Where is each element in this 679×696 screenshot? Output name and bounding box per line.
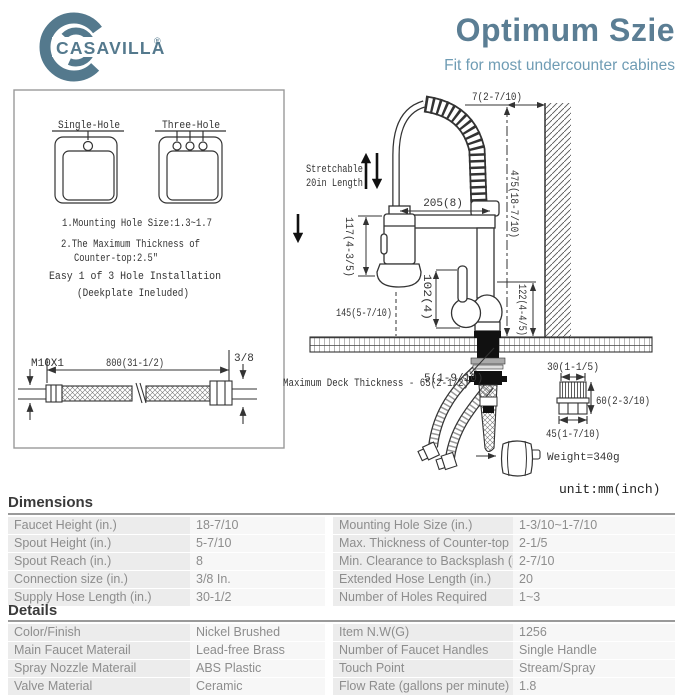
dim-label: Max. Thickness of Counter-top (in.) xyxy=(333,535,513,552)
dim-label: Spout Reach (in.) xyxy=(8,553,190,570)
technical-drawing: Single-Hole Three-Hole 1.Mounting Hole S… xyxy=(0,0,679,498)
hose-weight: Weight=340g xyxy=(476,441,620,476)
detail-label: Valve Material xyxy=(8,678,190,695)
dim-clearance-label: 145(5-7/10) xyxy=(336,308,392,320)
hose-thread-right-label: 3/8 xyxy=(234,353,254,365)
dim-handle-label: 102(4) xyxy=(420,274,432,320)
note-max-thickness-2: Counter-top:2.5" xyxy=(74,253,158,265)
table-row: Spray Nozzle Materail ABS Plastic Touch … xyxy=(8,660,675,677)
dim-spout-reach-label: 205(8) xyxy=(423,198,463,210)
aerator-top-dim-label: 30(1-1/5) xyxy=(547,362,599,374)
dim-label: Connection size (in.) xyxy=(8,571,190,588)
three-hole-sink-icon xyxy=(155,131,226,203)
dim-value: 18-7/10 xyxy=(190,517,325,534)
dim-faucet-height-label: 475(18-7/10) xyxy=(507,170,519,238)
detail-value: ABS Plastic xyxy=(190,660,325,677)
install-box: Single-Hole Three-Hole 1.Mounting Hole S… xyxy=(14,90,284,448)
dimensions-title: Dimensions xyxy=(8,494,93,511)
single-hole-sink-icon xyxy=(52,131,124,203)
three-hole-label: Three-Hole xyxy=(162,120,220,132)
weight-barrel-icon xyxy=(502,441,533,476)
pull-down-hose xyxy=(479,385,497,452)
dim-value: 1~3 xyxy=(513,589,675,606)
detail-value: Lead-free Brass xyxy=(190,642,325,659)
detail-label: Number of Faucet Handles xyxy=(333,642,513,659)
dim-label: Number of Holes Required xyxy=(333,589,513,606)
handle-ball xyxy=(452,299,481,328)
detail-label: Spray Nozzle Materail xyxy=(8,660,190,677)
table-row: Spout Reach (in.) 8 Min. Clearance to Ba… xyxy=(8,553,675,570)
dim-spray-head-label: 117(4-3/5) xyxy=(342,217,354,277)
detail-value: Ceramic xyxy=(190,678,325,695)
detail-label: Flow Rate (gallons per minute) xyxy=(333,678,513,695)
spray-button xyxy=(381,234,387,254)
dim-value: 30-1/2 xyxy=(190,589,325,606)
detail-value: Single Handle xyxy=(513,642,675,659)
spray-head xyxy=(377,206,421,287)
single-hole-label: Single-Hole xyxy=(58,120,120,132)
dim-value: 2-1/5 xyxy=(513,535,675,552)
dim-label: Mounting Hole Size (in.) xyxy=(333,517,513,534)
dim-value: 3/8 In. xyxy=(190,571,325,588)
dim-value: 20 xyxy=(513,571,675,588)
stretchable-label-2: 20in Length xyxy=(306,178,363,190)
table-row: Main Faucet Materail Lead-free Brass Num… xyxy=(8,642,675,659)
unit-note: unit:mm(inch) xyxy=(559,482,660,497)
dim-value: 5-7/10 xyxy=(190,535,325,552)
aerator-height-dim-label: 60(2-3/10) xyxy=(596,396,650,408)
dim-body-height-label: 122(4-4/5) xyxy=(515,284,527,336)
dim-top-offset-label: 7(2-7/10) xyxy=(472,92,522,104)
note-deckplate: (Deekplate Ineluded) xyxy=(77,288,189,300)
note-max-thickness-1: 2.The Maximum Thickness of xyxy=(61,239,200,251)
deck-thickness-label: Maximum Deck Thickness - 65(2-1/2) xyxy=(283,378,469,390)
table-row: Spout Height (in.) 5-7/10 Max. Thickness… xyxy=(8,535,675,552)
below-deck-hardware xyxy=(417,337,507,471)
detail-value: 1.8 xyxy=(513,678,675,695)
note-easy-install: Easy 1 of 3 Hole Installation xyxy=(49,271,221,283)
aerator-bottom-dim-label: 45(1-7/10) xyxy=(546,429,600,441)
detail-label: Item N.W(G) xyxy=(333,624,513,641)
hose-length-label: 800(31-1/2) xyxy=(106,358,164,370)
detail-value: Stream/Spray xyxy=(513,660,675,677)
table-row: Faucet Height (in.) 18-7/10 Mounting Hol… xyxy=(8,517,675,534)
detail-value: 1256 xyxy=(513,624,675,641)
faucet-drawing: 475(18-7/10) 7(2-7/10) Stretchable 20in … xyxy=(283,92,660,497)
hose-thread-left-label: M10X1 xyxy=(31,358,64,370)
aerator-fitting: 30(1-1/5) 60(2-3/10) 45(1-7/10) xyxy=(546,362,650,441)
dim-label: Extended Hose Length (in.) xyxy=(333,571,513,588)
weight-label: Weight=340g xyxy=(547,452,620,464)
details-table: Color/Finish Nickel Brushed Item N.W(G) … xyxy=(8,620,675,696)
dim-label: Faucet Height (in.) xyxy=(8,517,190,534)
note-mounting-hole: 1.Mounting Hole Size:1.3~1.7 xyxy=(62,218,212,230)
table-row: Valve Material Ceramic Flow Rate (gallon… xyxy=(8,678,675,695)
stretchable-label-1: Stretchable xyxy=(306,164,363,176)
table-row: Connection size (in.) 3/8 In. Extended H… xyxy=(8,571,675,588)
details-title: Details xyxy=(8,602,57,619)
dim-value: 2-7/10 xyxy=(513,553,675,570)
table-row: Supply Hose Length (in.) 30-1/2 Number o… xyxy=(8,589,675,606)
deck-flange xyxy=(474,331,501,338)
dimensions-table: Faucet Height (in.) 18-7/10 Mounting Hol… xyxy=(8,513,675,607)
table-row: Color/Finish Nickel Brushed Item N.W(G) … xyxy=(8,624,675,641)
dim-value: 8 xyxy=(190,553,325,570)
detail-value: Nickel Brushed xyxy=(190,624,325,641)
spring-hose xyxy=(396,104,479,210)
supply-hose-diagram: M10X1 800(31-1/2) 3/8 xyxy=(18,350,257,424)
detail-label: Touch Point xyxy=(333,660,513,677)
handle-lever xyxy=(458,266,467,302)
detail-label: Main Faucet Materail xyxy=(8,642,190,659)
dim-label: Min. Clearance to Backsplash (in.) xyxy=(333,553,513,570)
detail-label: Color/Finish xyxy=(8,624,190,641)
faucet-spec-sheet: CASAVILLA ® Optimum Szie Fit for most un… xyxy=(0,0,679,696)
dim-label: Spout Height (in.) xyxy=(8,535,190,552)
wall-hatch xyxy=(545,103,571,337)
dim-value: 1-3/10~1-7/10 xyxy=(513,517,675,534)
